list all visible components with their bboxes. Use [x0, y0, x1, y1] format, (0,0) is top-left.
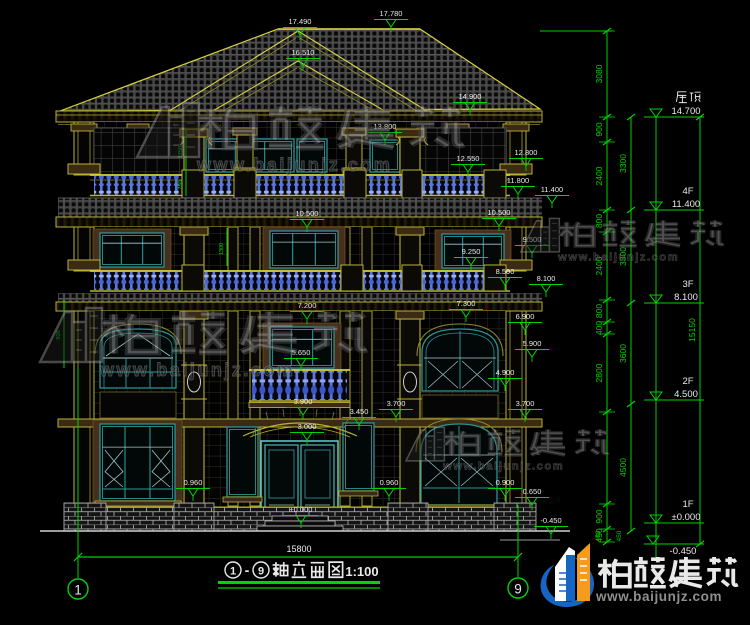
svg-text:15800: 15800	[286, 544, 311, 554]
svg-text:3600: 3600	[618, 344, 628, 363]
svg-text:11.800: 11.800	[507, 176, 529, 185]
svg-text:1:100: 1:100	[345, 564, 378, 579]
svg-text:4F: 4F	[682, 186, 693, 197]
svg-text:±0.000: ±0.000	[290, 505, 313, 514]
svg-text:www.baijunjz.com: www.baijunjz.com	[196, 155, 392, 175]
svg-text:3F: 3F	[682, 279, 693, 290]
svg-text:11.400: 11.400	[541, 185, 563, 194]
svg-text:750: 750	[178, 180, 184, 189]
svg-text:12.550: 12.550	[457, 154, 480, 163]
svg-text:4500: 4500	[618, 458, 628, 477]
svg-text:15150: 15150	[687, 318, 697, 342]
svg-text:5.900: 5.900	[523, 339, 542, 348]
svg-text:16.510: 16.510	[292, 48, 315, 57]
svg-text:±0.000: ±0.000	[672, 512, 701, 523]
svg-text:6.900: 6.900	[516, 312, 535, 321]
svg-text:2400: 2400	[594, 166, 604, 185]
svg-text:450: 450	[595, 530, 602, 541]
svg-text:3.900: 3.900	[294, 397, 313, 406]
svg-text:-0.450: -0.450	[540, 516, 561, 525]
svg-text:3.450: 3.450	[350, 407, 369, 416]
svg-text:1: 1	[230, 566, 236, 578]
svg-text:7.300: 7.300	[457, 299, 476, 308]
svg-text:450: 450	[616, 530, 623, 541]
svg-text:3.700: 3.700	[516, 399, 535, 408]
svg-text:12.800: 12.800	[515, 148, 538, 157]
svg-text:8.100: 8.100	[537, 274, 556, 283]
svg-text:14.900: 14.900	[459, 92, 482, 101]
svg-text:0.650: 0.650	[523, 487, 542, 496]
svg-text:800: 800	[594, 304, 604, 318]
svg-text:400: 400	[594, 321, 604, 335]
svg-text:10.500: 10.500	[488, 208, 511, 217]
svg-text:0.900: 0.900	[496, 478, 515, 487]
svg-text:-0.450: -0.450	[670, 546, 697, 557]
svg-text:8.500: 8.500	[496, 267, 515, 276]
svg-text:8.100: 8.100	[674, 292, 698, 303]
svg-text:2800: 2800	[594, 363, 604, 382]
svg-text:900: 900	[594, 122, 604, 136]
svg-text:www.baijunjz.com: www.baijunjz.com	[595, 589, 722, 604]
svg-text:4.500: 4.500	[674, 389, 698, 400]
svg-text:17.490: 17.490	[289, 17, 312, 26]
svg-text:14.700: 14.700	[671, 106, 700, 117]
svg-text:3080: 3080	[594, 64, 604, 83]
svg-text:4.900: 4.900	[496, 368, 515, 377]
svg-text:11.400: 11.400	[672, 199, 700, 210]
svg-text:9.250: 9.250	[462, 247, 481, 256]
svg-text:-: -	[245, 562, 250, 578]
svg-text:17.780: 17.780	[380, 9, 403, 18]
svg-text:www.baijunjz.com: www.baijunjz.com	[99, 360, 295, 380]
svg-text:www.baijunjz.com: www.baijunjz.com	[442, 461, 564, 473]
svg-text:7.200: 7.200	[298, 301, 317, 310]
svg-text:0.960: 0.960	[184, 478, 203, 487]
svg-text:9: 9	[514, 582, 522, 597]
svg-text:1F: 1F	[682, 499, 693, 510]
svg-text:0.960: 0.960	[380, 478, 399, 487]
svg-text:9: 9	[258, 566, 264, 578]
svg-text:3.000: 3.000	[298, 422, 317, 431]
svg-text:1: 1	[74, 583, 82, 598]
svg-text:1300: 1300	[219, 243, 225, 255]
svg-text:www.baijunjz.com: www.baijunjz.com	[557, 252, 679, 264]
svg-text:3.700: 3.700	[387, 399, 406, 408]
svg-text:10.500: 10.500	[296, 209, 319, 218]
svg-text:3300: 3300	[618, 154, 628, 173]
svg-text:2F: 2F	[682, 376, 693, 387]
svg-text:900: 900	[594, 509, 604, 523]
